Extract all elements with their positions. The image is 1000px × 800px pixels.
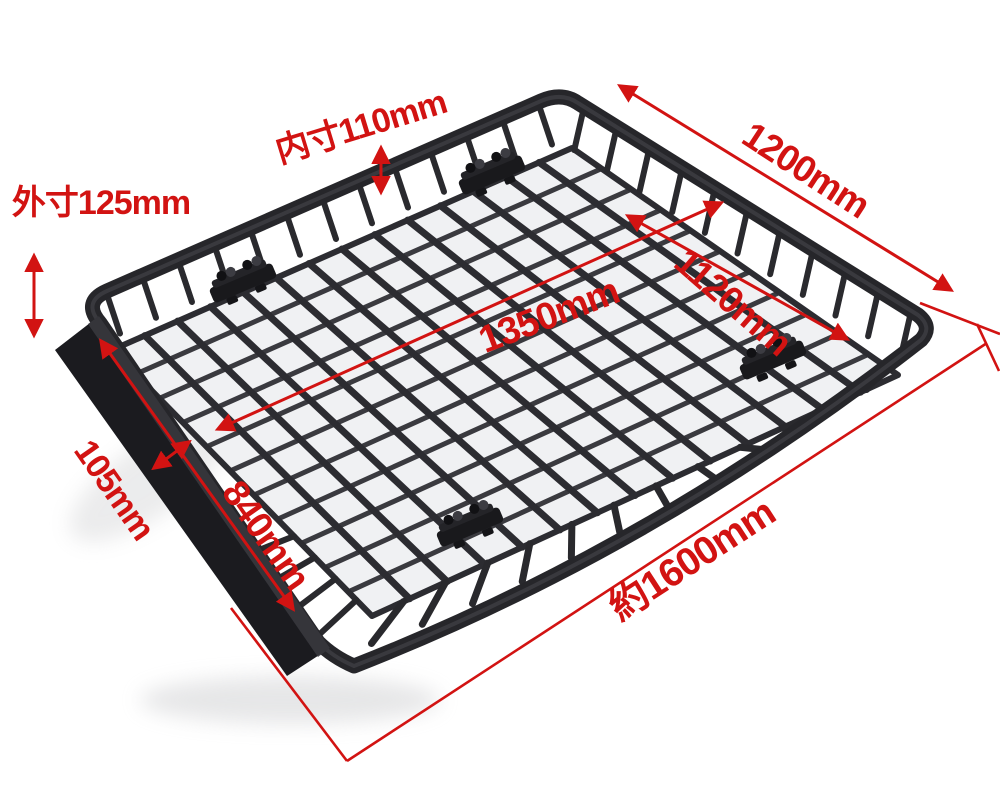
basket-bar xyxy=(614,505,620,533)
basket-bar xyxy=(835,272,845,316)
basket-bar xyxy=(571,524,572,558)
dimension-label-outer-height: 外寸125mm xyxy=(12,184,190,222)
dimension-label-overall-length: 約1600mm xyxy=(601,491,782,630)
product-image-roof-cargo-basket: 内寸110mm 外寸125mm 1200mm 1120mm 1350mm 105… xyxy=(0,0,1000,800)
basket-bar xyxy=(656,486,668,507)
annotated-dimension-diagram: 内寸110mm 外寸125mm 1200mm 1120mm 1350mm 105… xyxy=(0,0,1000,800)
basket-bar xyxy=(803,251,813,295)
basket-bar xyxy=(318,600,356,636)
basket-bar xyxy=(868,292,878,336)
